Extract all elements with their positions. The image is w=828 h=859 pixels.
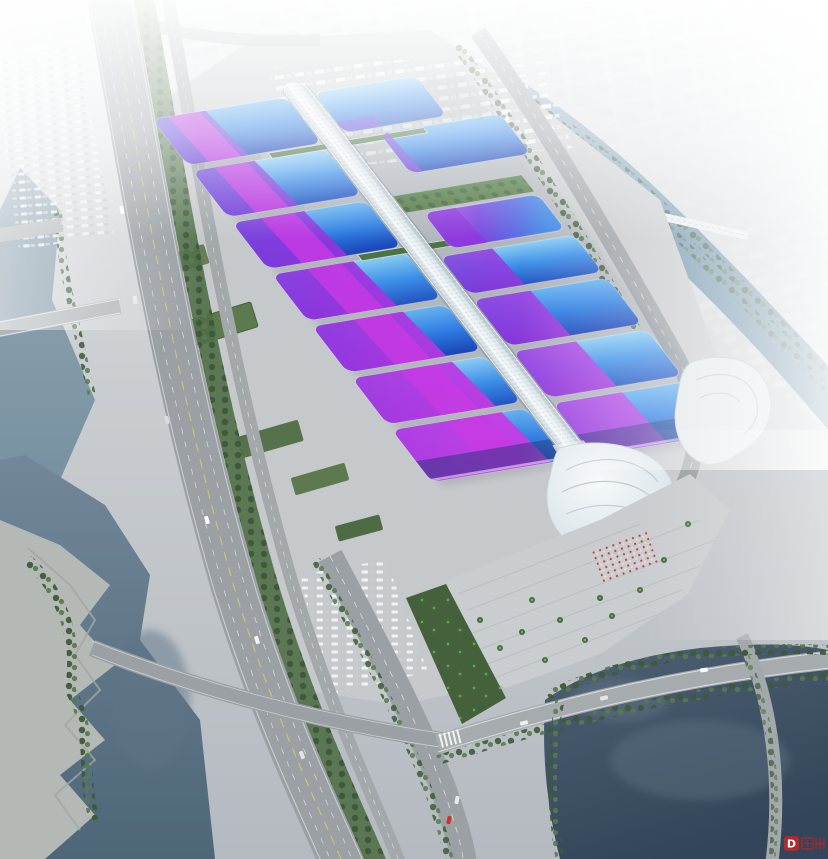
scene-canvas: D <box>0 0 828 859</box>
haze-right <box>520 0 828 470</box>
cloud-reflection <box>610 720 790 800</box>
watermark-letter: D <box>787 838 796 851</box>
haze-left <box>0 0 200 330</box>
haze-bottom-right <box>640 430 828 640</box>
aerial-rendering: D <box>0 0 828 859</box>
